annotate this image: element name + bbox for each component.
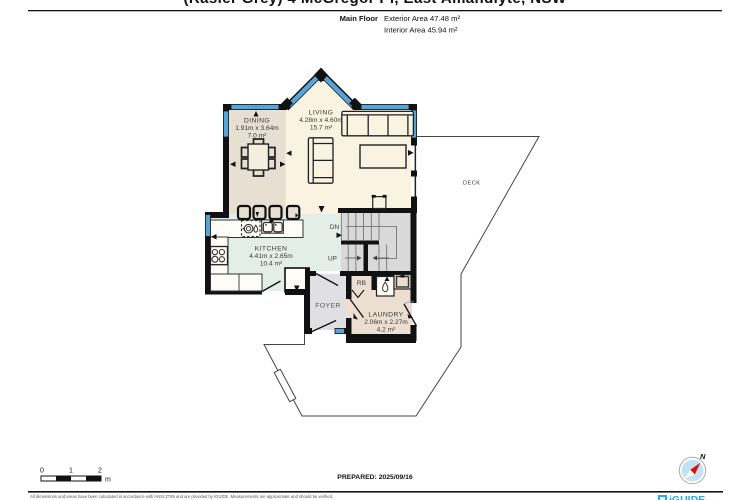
svg-text:LAUNDRY: LAUNDRY — [368, 312, 403, 319]
svg-text:N: N — [700, 452, 706, 461]
svg-text:FOYER: FOYER — [315, 303, 340, 310]
svg-text:DINING: DINING — [244, 118, 270, 125]
svg-text:2: 2 — [98, 468, 102, 475]
svg-text:1.91m x 3.64m: 1.91m x 3.64m — [235, 125, 279, 132]
svg-text:RB: RB — [357, 280, 367, 287]
svg-text:Exterior Area 47.48 m²: Exterior Area 47.48 m² — [384, 14, 460, 23]
svg-text:Interior Area 45.94 m²: Interior Area 45.94 m² — [384, 26, 458, 35]
svg-text:(Rasier Grey) 4 McGregor Pl, E: (Rasier Grey) 4 McGregor Pl, East Amandl… — [184, 0, 567, 7]
svg-text:2.06m x 2.27m: 2.06m x 2.27m — [364, 319, 408, 326]
svg-text:10.4 m²: 10.4 m² — [260, 261, 283, 268]
svg-text:7.0 m²: 7.0 m² — [248, 133, 267, 140]
svg-text:4.28m x 4.60m: 4.28m x 4.60m — [299, 117, 343, 124]
svg-text:1: 1 — [69, 468, 73, 475]
svg-text:Main Floor: Main Floor — [340, 14, 378, 23]
svg-text:PREPARED: 2025/09/16: PREPARED: 2025/09/16 — [337, 474, 413, 481]
svg-text:All dimensions and areas have: All dimensions and areas have been calcu… — [30, 494, 333, 499]
svg-text:UP: UP — [328, 256, 337, 263]
svg-text:4.41m x 2.65m: 4.41m x 2.65m — [249, 253, 293, 260]
svg-text:m: m — [105, 477, 111, 484]
svg-text:LIVING: LIVING — [309, 110, 334, 117]
svg-text:iGUIDE: iGUIDE — [669, 494, 705, 500]
svg-text:0: 0 — [40, 468, 44, 475]
svg-text:4.2 m²: 4.2 m² — [377, 327, 396, 334]
svg-text:DECK: DECK — [463, 181, 481, 187]
svg-text:KITCHEN: KITCHEN — [255, 246, 288, 253]
svg-text:15.7 m²: 15.7 m² — [310, 125, 333, 132]
svg-text:DN: DN — [330, 224, 340, 231]
